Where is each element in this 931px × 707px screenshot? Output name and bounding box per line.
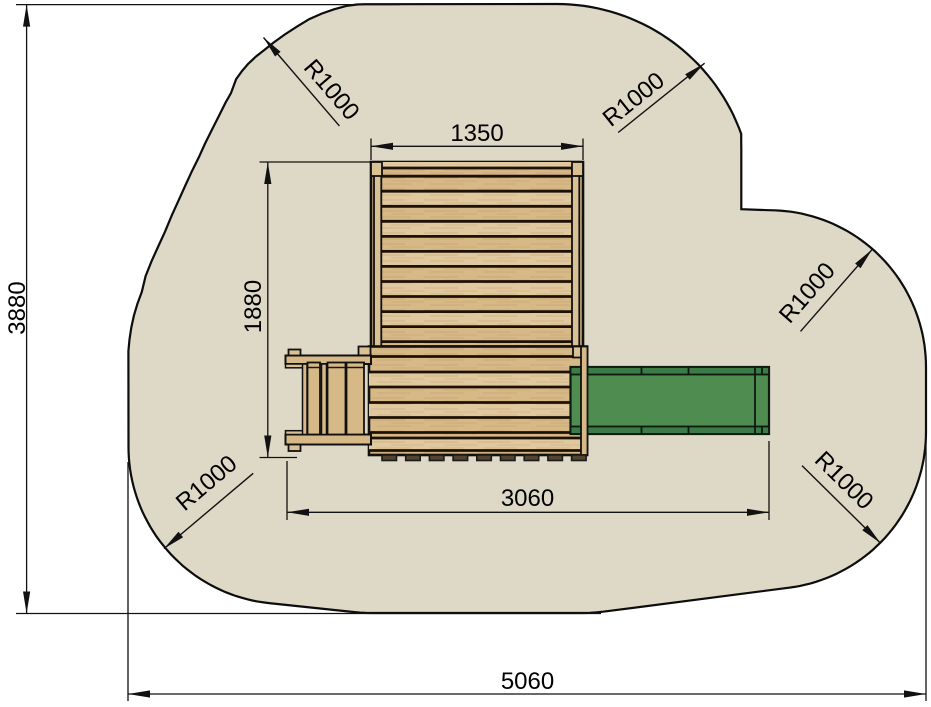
svg-text:3060: 3060 (501, 485, 554, 512)
svg-text:5060: 5060 (501, 668, 554, 695)
svg-text:1350: 1350 (450, 120, 503, 147)
svg-text:1880: 1880 (240, 280, 267, 333)
svg-text:3880: 3880 (4, 281, 31, 334)
